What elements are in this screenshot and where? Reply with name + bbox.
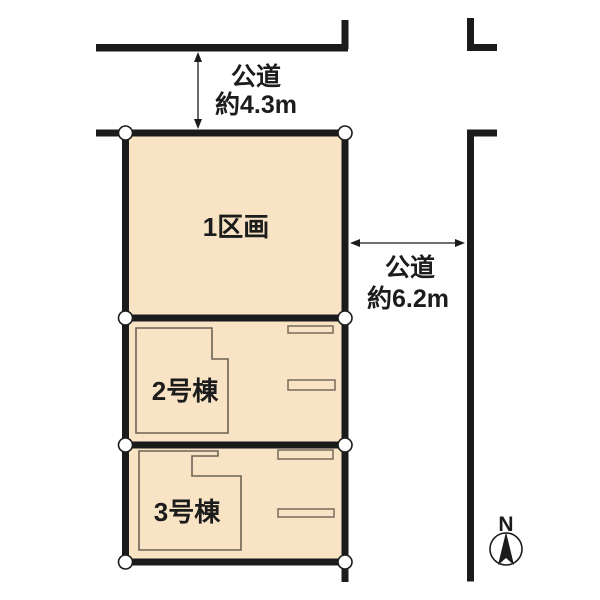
survey-point-marker (119, 311, 133, 325)
right-road-width-arrow (350, 239, 465, 247)
survey-point-marker (338, 438, 352, 452)
top-road-name-label: 公道 (231, 62, 281, 91)
survey-point-marker (338, 311, 352, 325)
top-road-width-label: 約4.3m (215, 90, 297, 119)
top-road-upper-edge-stub (342, 20, 349, 49)
north-compass: N (490, 513, 522, 565)
top-road-upper-edge (96, 44, 348, 52)
lot-3-label: 3号棟 (154, 497, 221, 527)
right-road-width-label: 約6.2m (367, 284, 449, 313)
top-road-width-arrow (194, 52, 202, 129)
lot-2-label: 2号棟 (152, 376, 219, 406)
site-plan-svg: 公道 約4.3m 公道 約6.2m 1区画 2号棟 3号棟 N (0, 0, 600, 600)
survey-point-marker (119, 438, 133, 452)
survey-point-marker (338, 555, 352, 569)
lot-1-label: 1区画 (203, 212, 269, 242)
intersection-corner-horizontal (467, 44, 497, 51)
survey-point-marker (338, 126, 352, 140)
right-road-outer-edge (467, 130, 474, 582)
right-road-name-label: 公道 (385, 253, 435, 282)
survey-point-marker (119, 555, 133, 569)
site-plan-diagram: 公道 約4.3m 公道 約6.2m 1区画 2号棟 3号棟 N (0, 0, 600, 600)
survey-point-marker (119, 126, 133, 140)
